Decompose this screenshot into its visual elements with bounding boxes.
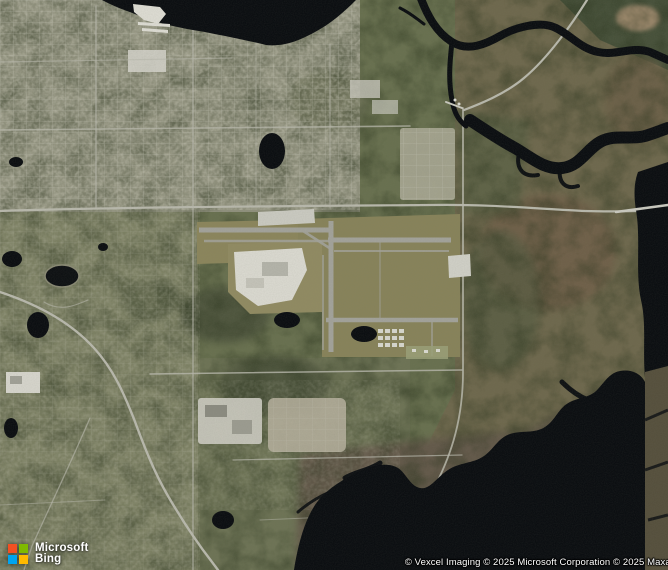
bing-maps-viewport[interactable]: Microsoft Bing © Vexcel Imaging © 2025 M… <box>0 0 668 570</box>
copyright-attribution: © Vexcel Imaging © 2025 Microsoft Corpor… <box>405 557 668 568</box>
satellite-imagery-layer <box>0 0 668 570</box>
microsoft-logo-icon <box>8 544 28 564</box>
ms-square-green <box>19 544 28 553</box>
brand-bing: Bing <box>35 554 89 565</box>
image-grain <box>0 0 668 570</box>
ms-square-blue <box>8 555 17 564</box>
ms-square-yellow <box>19 555 28 564</box>
ms-square-red <box>8 544 17 553</box>
bing-logo[interactable]: Microsoft Bing <box>8 543 89 565</box>
bing-logo-text: Microsoft Bing <box>35 543 89 565</box>
